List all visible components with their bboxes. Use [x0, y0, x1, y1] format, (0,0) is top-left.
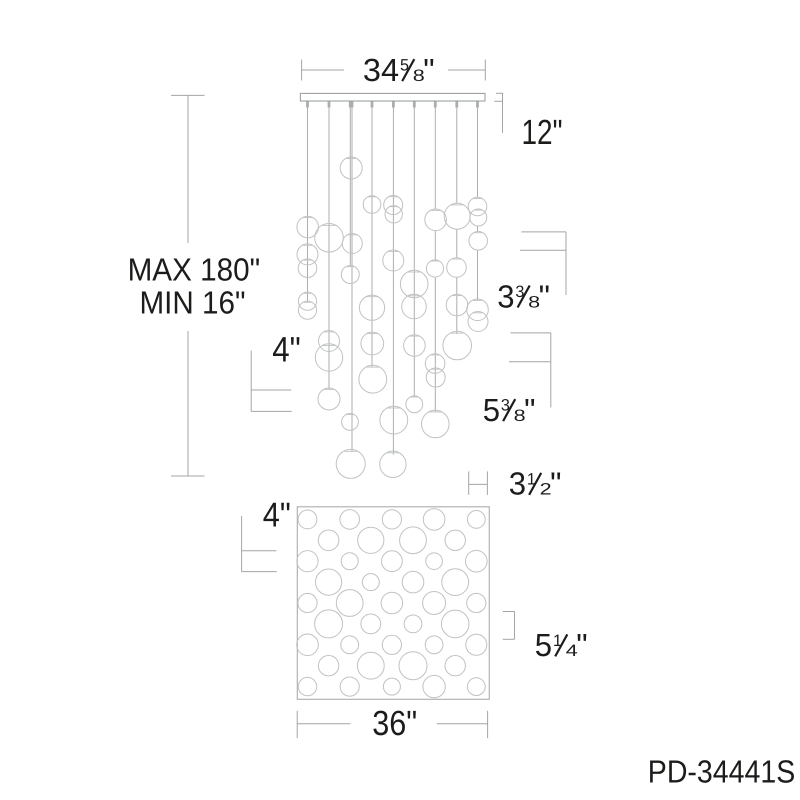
svg-text:": "	[550, 466, 561, 502]
svg-text:34: 34	[363, 52, 399, 88]
svg-text:5: 5	[483, 392, 500, 428]
svg-text:12": 12"	[522, 113, 563, 152]
svg-text:5: 5	[535, 627, 552, 663]
svg-text:MAX 180": MAX 180"	[128, 252, 261, 288]
svg-text:": "	[423, 52, 434, 88]
svg-text:": "	[524, 392, 535, 428]
svg-text:MIN 16": MIN 16"	[140, 285, 246, 321]
svg-text:3: 3	[509, 466, 526, 502]
svg-text:4": 4"	[263, 497, 291, 535]
svg-text:36": 36"	[372, 704, 417, 743]
svg-text:": "	[539, 278, 550, 314]
svg-text:": "	[576, 627, 587, 663]
svg-text:PD-34441S: PD-34441S	[648, 753, 796, 789]
svg-text:3: 3	[497, 278, 514, 314]
svg-text:4": 4"	[272, 330, 301, 370]
